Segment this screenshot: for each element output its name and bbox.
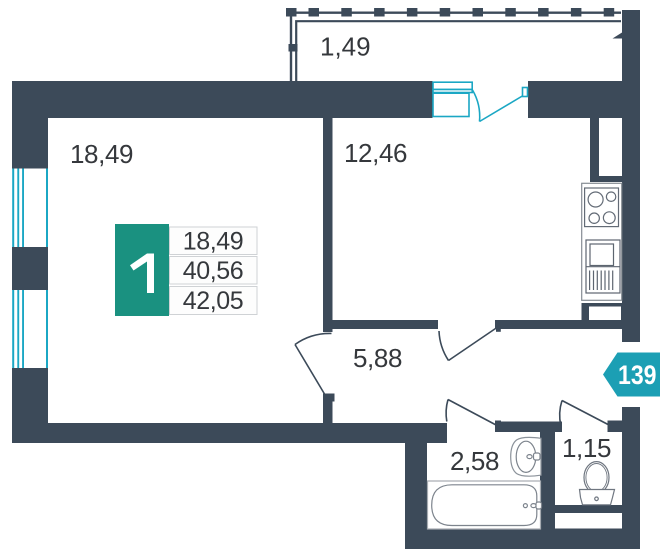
svg-text:5,88: 5,88	[353, 343, 402, 373]
svg-text:40,56: 40,56	[183, 257, 244, 285]
svg-text:12,46: 12,46	[344, 138, 407, 168]
svg-text:18,49: 18,49	[183, 228, 244, 256]
svg-text:1,15: 1,15	[562, 433, 611, 463]
svg-text:2,58: 2,58	[450, 446, 499, 476]
svg-text:139: 139	[618, 360, 657, 390]
svg-text:1,49: 1,49	[320, 32, 371, 62]
svg-text:42,05: 42,05	[183, 287, 244, 315]
svg-text:18,49: 18,49	[70, 139, 133, 169]
